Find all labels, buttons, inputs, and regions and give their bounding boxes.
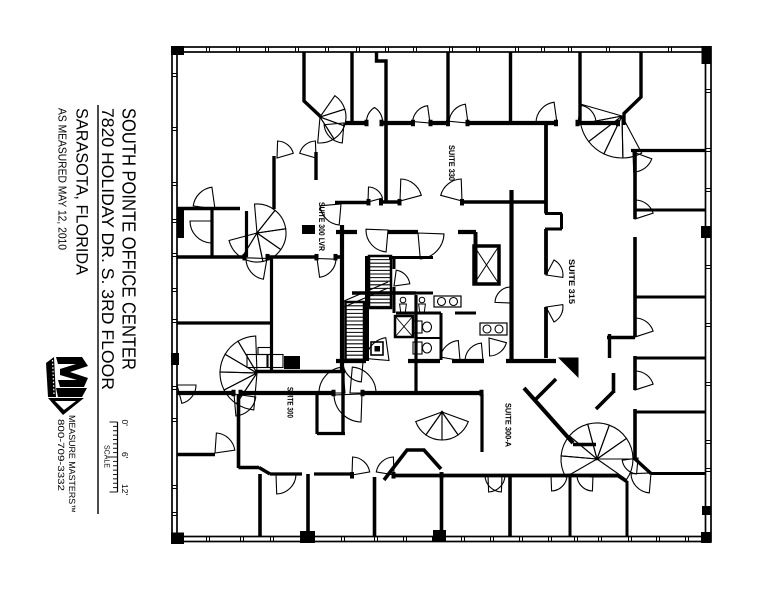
svg-text:0': 0' [120, 420, 130, 427]
svg-text:800-709-3332: 800-709-3332 [56, 419, 66, 491]
svg-text:SCALE: SCALE [103, 445, 112, 468]
svg-text:12': 12' [120, 484, 130, 495]
svg-text:SUITE 300-A: SUITE 300-A [504, 403, 513, 447]
svg-text:6': 6' [120, 452, 130, 459]
svg-text:SUITE 315: SUITE 315 [567, 259, 576, 305]
svg-text:SUITE 300 LVR: SUITE 300 LVR [317, 202, 326, 251]
svg-text:7820 HOLIDAY DR. S. 3RD FLOOR: 7820 HOLIDAY DR. S. 3RD FLOOR [98, 108, 117, 390]
svg-text:SUITE 330: SUITE 330 [447, 145, 456, 181]
svg-text:AS MEASURED MAY 12, 2010: AS MEASURED MAY 12, 2010 [56, 108, 68, 250]
svg-text:SOUTH POINTE OFFICE CENTER: SOUTH POINTE OFFICE CENTER [118, 108, 139, 370]
svg-text:SUITE 300: SUITE 300 [286, 387, 295, 418]
svg-text:MEASURE MASTERS™: MEASURE MASTERS™ [67, 415, 77, 513]
svg-text:SARASOTA, FLORIDA: SARASOTA, FLORIDA [73, 108, 91, 275]
